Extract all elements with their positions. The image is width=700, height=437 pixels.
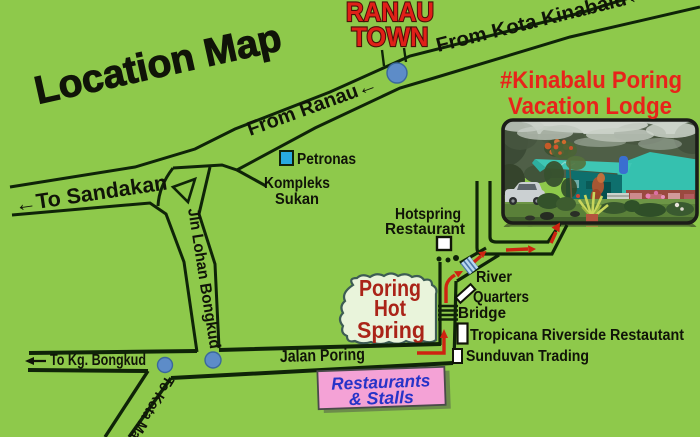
- svg-text:Tropicana Riverside Restautant: Tropicana Riverside Restautant: [470, 327, 685, 344]
- svg-text:To Kg. Bongkud: To Kg. Bongkud: [50, 352, 146, 369]
- svg-text:Sukan: Sukan: [275, 191, 319, 208]
- svg-text:Petronas: Petronas: [297, 151, 356, 168]
- svg-text:#Kinabalu Poring: #Kinabalu Poring: [500, 67, 682, 94]
- svg-text:& Stalls: & Stalls: [349, 387, 415, 409]
- svg-text:Quarters: Quarters: [473, 289, 529, 306]
- svg-text:Kompleks: Kompleks: [264, 175, 330, 192]
- svg-text:River: River: [476, 269, 512, 286]
- svg-text:Spring: Spring: [357, 317, 425, 343]
- svg-text:Vacation Lodge: Vacation Lodge: [508, 93, 672, 120]
- svg-text:TOWN: TOWN: [352, 22, 429, 52]
- svg-text:Sunduvan Trading: Sunduvan Trading: [466, 348, 589, 365]
- svg-text:Restaurant: Restaurant: [385, 221, 465, 238]
- svg-text:Bridge: Bridge: [458, 305, 506, 322]
- svg-text:Jalan Poring: Jalan Poring: [280, 345, 365, 366]
